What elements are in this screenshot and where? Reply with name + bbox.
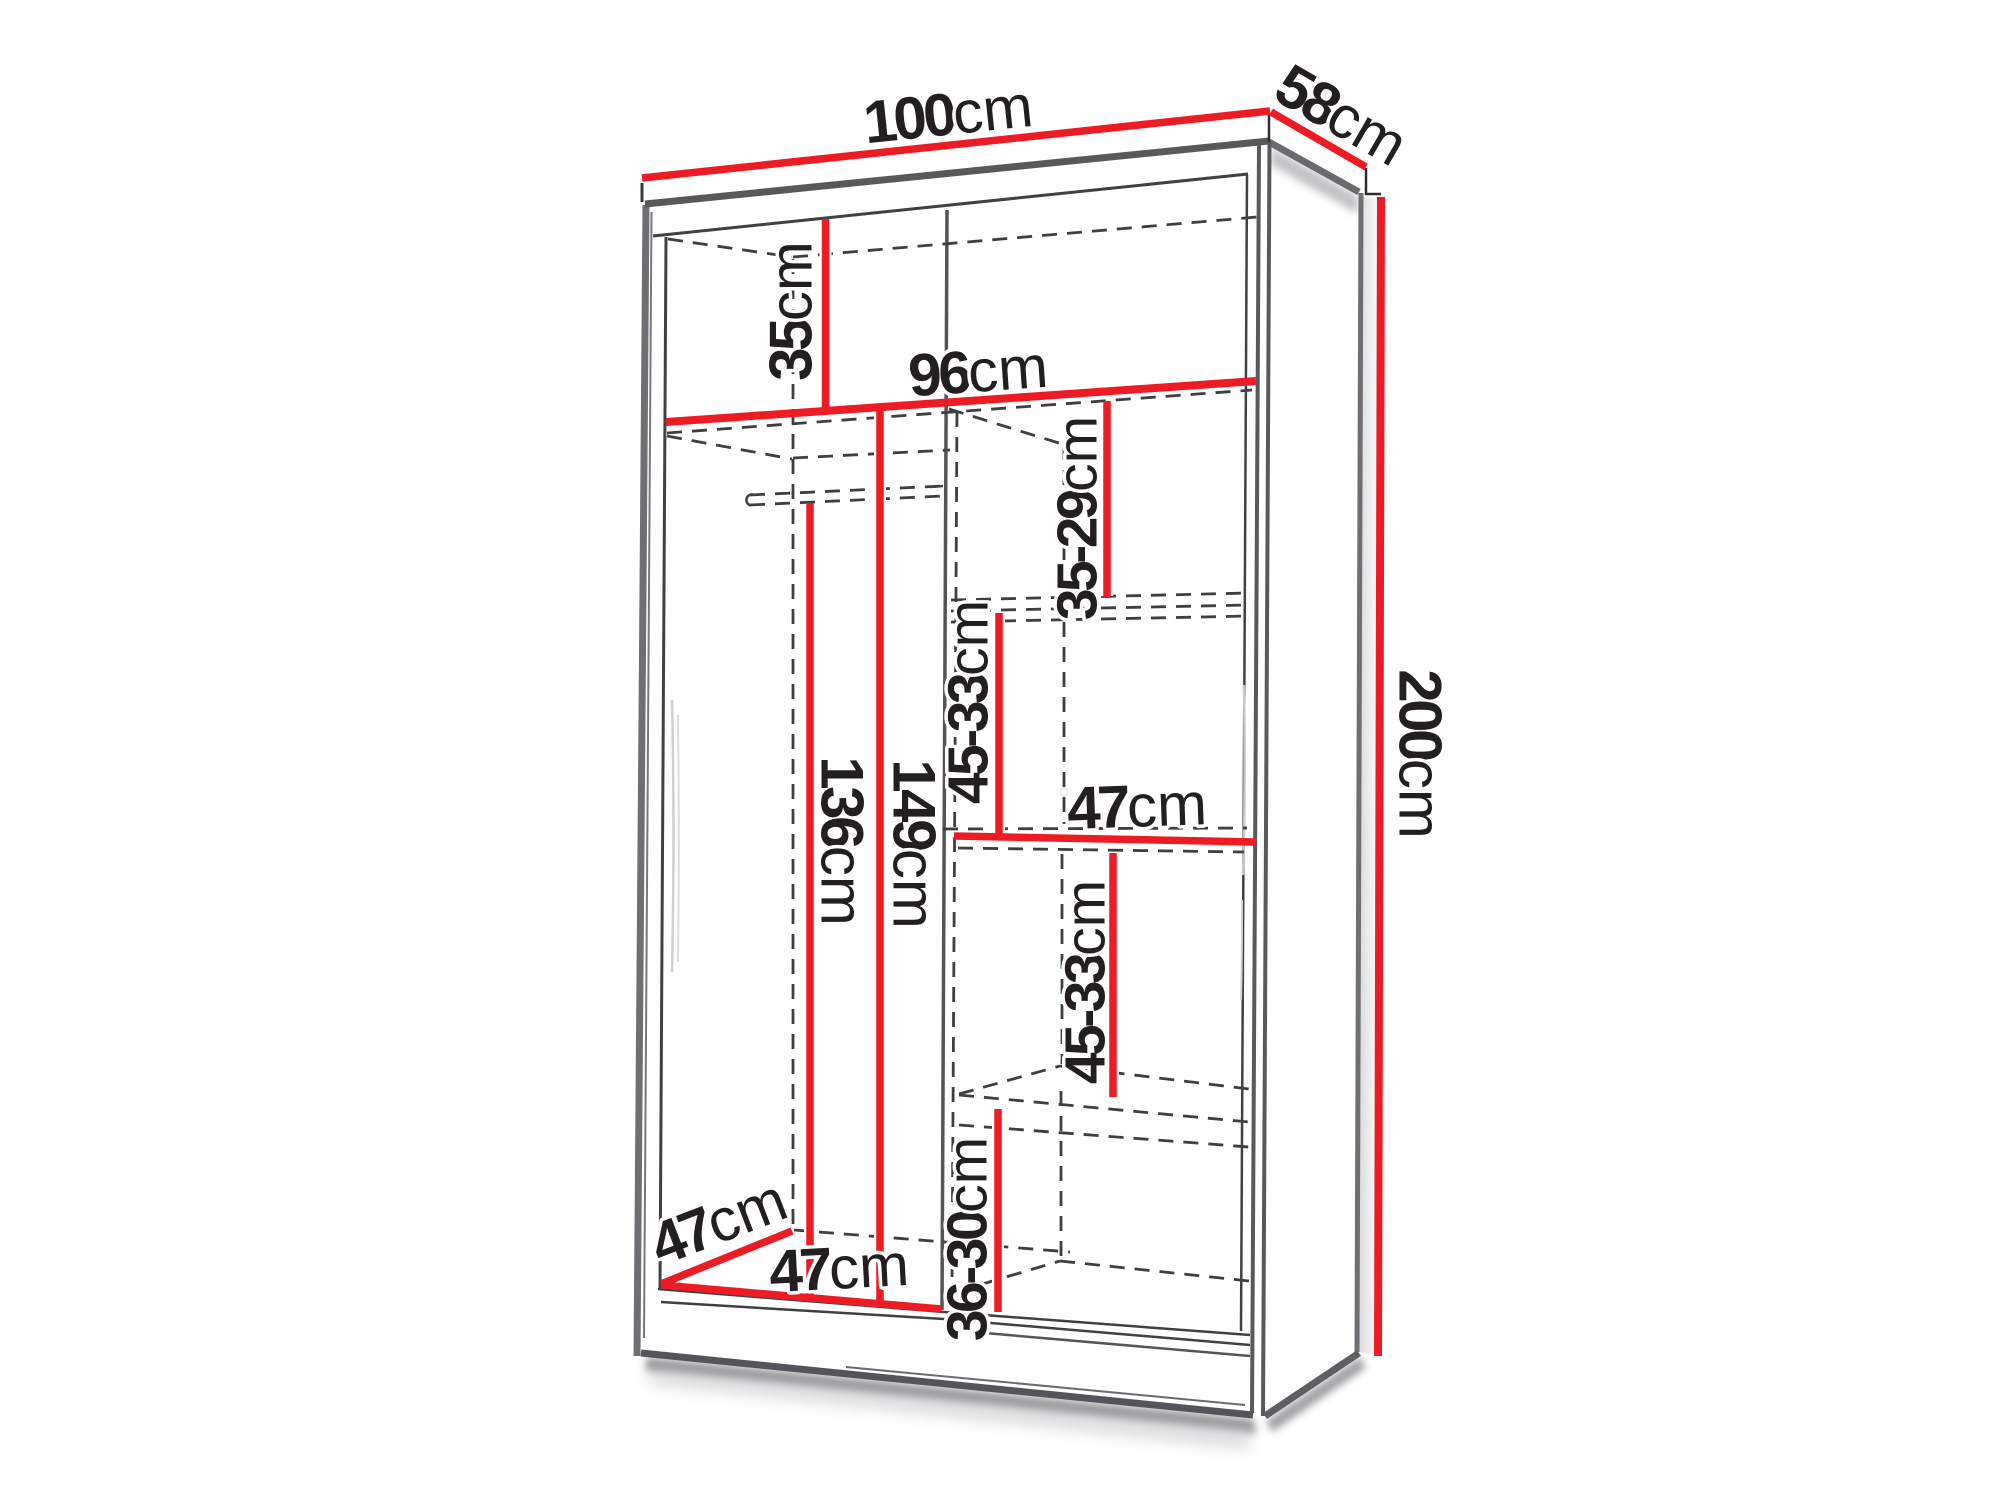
svg-text:96cm: 96cm	[906, 333, 1050, 410]
svg-text:100cm: 100cm	[860, 72, 1036, 156]
svg-text:200cm: 200cm	[1386, 669, 1453, 839]
svg-text:45-33cm: 45-33cm	[1054, 880, 1118, 1084]
svg-text:35cm: 35cm	[758, 241, 825, 381]
svg-text:35-29cm: 35-29cm	[1046, 416, 1110, 620]
svg-text:149cm: 149cm	[880, 759, 947, 929]
svg-text:136cm: 136cm	[808, 756, 875, 926]
svg-text:36-30cm: 36-30cm	[936, 1137, 1000, 1341]
svg-text:47cm: 47cm	[768, 1231, 911, 1305]
svg-text:47cm: 47cm	[1066, 770, 1208, 842]
